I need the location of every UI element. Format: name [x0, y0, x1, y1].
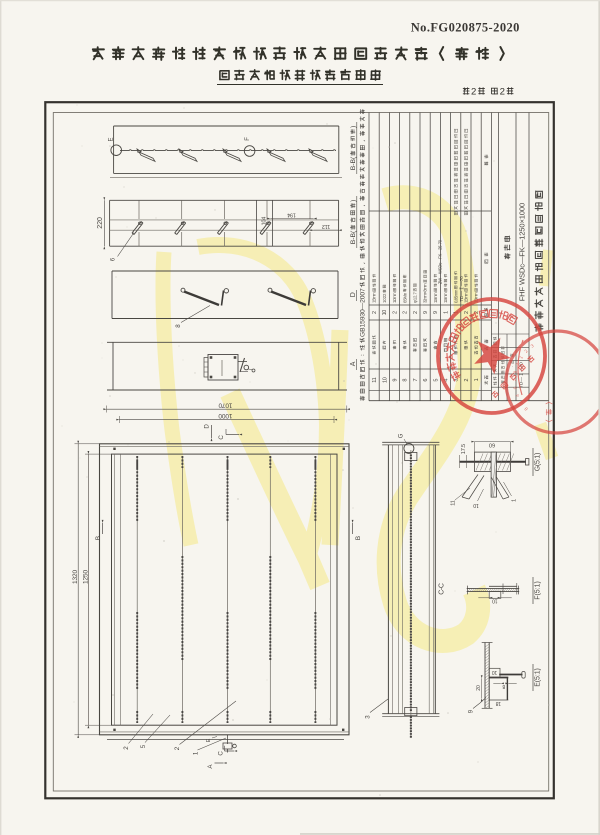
svg-text:φ12.7: φ12.7 — [413, 292, 418, 303]
svg-text:G(5:1): G(5:1) — [534, 453, 541, 472]
svg-text:B: B — [95, 535, 102, 540]
svg-text:11: 11 — [450, 500, 456, 505]
svg-text:2: 2 — [464, 378, 470, 381]
svg-text:F: F — [245, 137, 251, 141]
svg-text:220: 220 — [97, 217, 104, 229]
svg-text:1: 1 — [193, 751, 200, 755]
svg-text:2: 2 — [500, 87, 505, 98]
svg-text:2: 2 — [392, 311, 398, 314]
svg-text:20: 20 — [476, 685, 482, 691]
svg-text:E(5:1): E(5:1) — [534, 668, 541, 687]
svg-text:2: 2 — [372, 311, 378, 314]
svg-text:No.FG020875-2020: No.FG020875-2020 — [411, 21, 520, 35]
svg-text:9: 9 — [393, 378, 399, 381]
svg-text:1.5mm: 1.5mm — [443, 292, 448, 303]
svg-text:): ) — [350, 126, 357, 128]
svg-text:GB15930—2007: GB15930—2007 — [360, 288, 367, 337]
svg-text:5: 5 — [140, 744, 147, 748]
svg-text:C-C: C-C — [438, 583, 445, 595]
svg-text:32mm×3mm: 32mm×3mm — [423, 283, 428, 303]
svg-text:60: 60 — [489, 441, 495, 447]
svg-text:D: D — [350, 292, 357, 297]
svg-text:5: 5 — [433, 378, 439, 381]
svg-text:1320: 1320 — [72, 570, 79, 584]
svg-text:112: 112 — [322, 223, 330, 229]
svg-text:3: 3 — [364, 715, 371, 719]
svg-text:65Mn: 65Mn — [402, 292, 407, 303]
svg-text:2: 2 — [403, 311, 409, 314]
svg-text:2: 2 — [512, 378, 517, 381]
svg-text:—70: —70 — [459, 276, 465, 286]
svg-text:104: 104 — [261, 217, 267, 226]
svg-text:E: E — [206, 738, 212, 742]
svg-text:2: 2 — [123, 746, 130, 750]
svg-text:B-B(: B-B( — [350, 230, 357, 244]
svg-text:10: 10 — [382, 310, 388, 316]
svg-text:8: 8 — [175, 324, 182, 328]
svg-text:2: 2 — [464, 311, 470, 314]
svg-text:1: 1 — [511, 499, 517, 502]
svg-text:F(5:1): F(5:1) — [534, 581, 541, 600]
svg-text:8: 8 — [403, 378, 409, 381]
svg-text:1250: 1250 — [83, 570, 90, 584]
svg-text:1022: 1022 — [382, 293, 387, 303]
svg-text:A: A — [350, 361, 357, 366]
svg-text:G: G — [399, 433, 405, 438]
svg-text:): ) — [350, 200, 357, 202]
svg-text:9: 9 — [433, 311, 439, 314]
svg-text:FHF WSDc—FK—1250×1000: FHF WSDc—FK—1250×1000 — [518, 203, 527, 301]
svg-text:1.5mm: 1.5mm — [433, 292, 438, 303]
svg-text:1000: 1000 — [218, 412, 232, 419]
svg-text:2: 2 — [471, 87, 476, 98]
svg-text:1: 1 — [443, 311, 449, 314]
svg-text:C: C — [218, 751, 225, 756]
svg-text:E: E — [109, 137, 115, 141]
svg-text:B: B — [355, 535, 362, 540]
svg-text:6: 6 — [110, 257, 117, 261]
svg-text:17.5: 17.5 — [461, 444, 467, 454]
svg-text:ZW—WSDc—FK—25-70: ZW—WSDc—FK—25-70 — [438, 239, 443, 284]
svg-text:10: 10 — [382, 377, 388, 383]
svg-text:2: 2 — [174, 746, 181, 750]
svg-text:11: 11 — [372, 377, 378, 383]
svg-text:TD—: TD— — [459, 291, 465, 302]
svg-text:B-B(: B-B( — [350, 156, 357, 170]
svg-text:10: 10 — [473, 502, 479, 508]
svg-text:18: 18 — [495, 700, 501, 706]
svg-text:194: 194 — [287, 211, 296, 217]
svg-text:6: 6 — [423, 378, 429, 381]
svg-text:1.5mm: 1.5mm — [372, 292, 377, 303]
svg-text:10: 10 — [492, 669, 498, 675]
svg-text:9: 9 — [423, 311, 429, 314]
svg-text:1.0mm: 1.0mm — [392, 292, 397, 303]
svg-text:8: 8 — [502, 683, 505, 689]
svg-text:7: 7 — [413, 378, 419, 381]
svg-text:1: 1 — [474, 378, 480, 381]
svg-text:C: C — [218, 435, 225, 440]
svg-text:2: 2 — [413, 311, 419, 314]
svg-text:0.85mm: 0.85mm — [453, 289, 458, 303]
svg-text:10: 10 — [492, 598, 498, 604]
svg-text:D: D — [204, 424, 211, 429]
svg-text:1070: 1070 — [218, 401, 232, 408]
